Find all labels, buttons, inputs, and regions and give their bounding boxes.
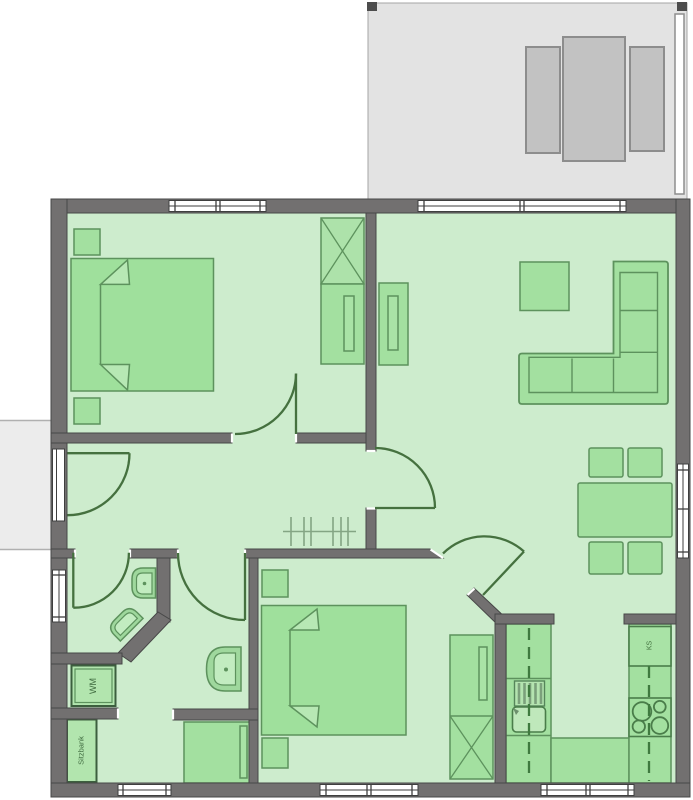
svg-text:KS: KS	[646, 641, 653, 651]
svg-text:WM: WM	[88, 678, 98, 694]
svg-text:Sitzbank: Sitzbank	[76, 736, 85, 765]
